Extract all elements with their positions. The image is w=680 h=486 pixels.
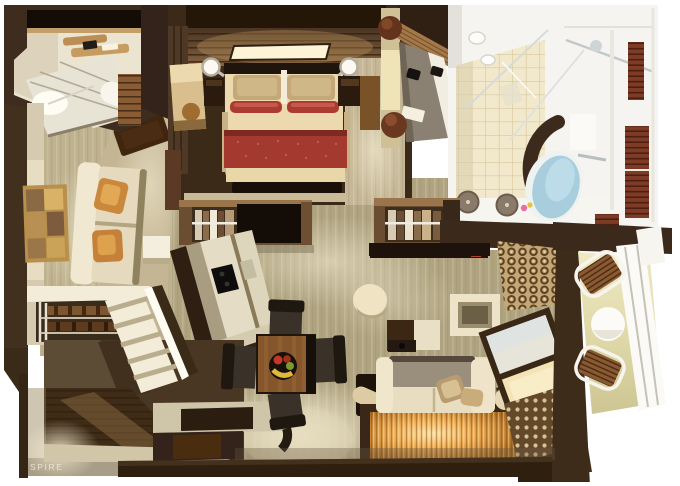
- svg-text:SPIRE: SPIRE: [30, 462, 64, 472]
